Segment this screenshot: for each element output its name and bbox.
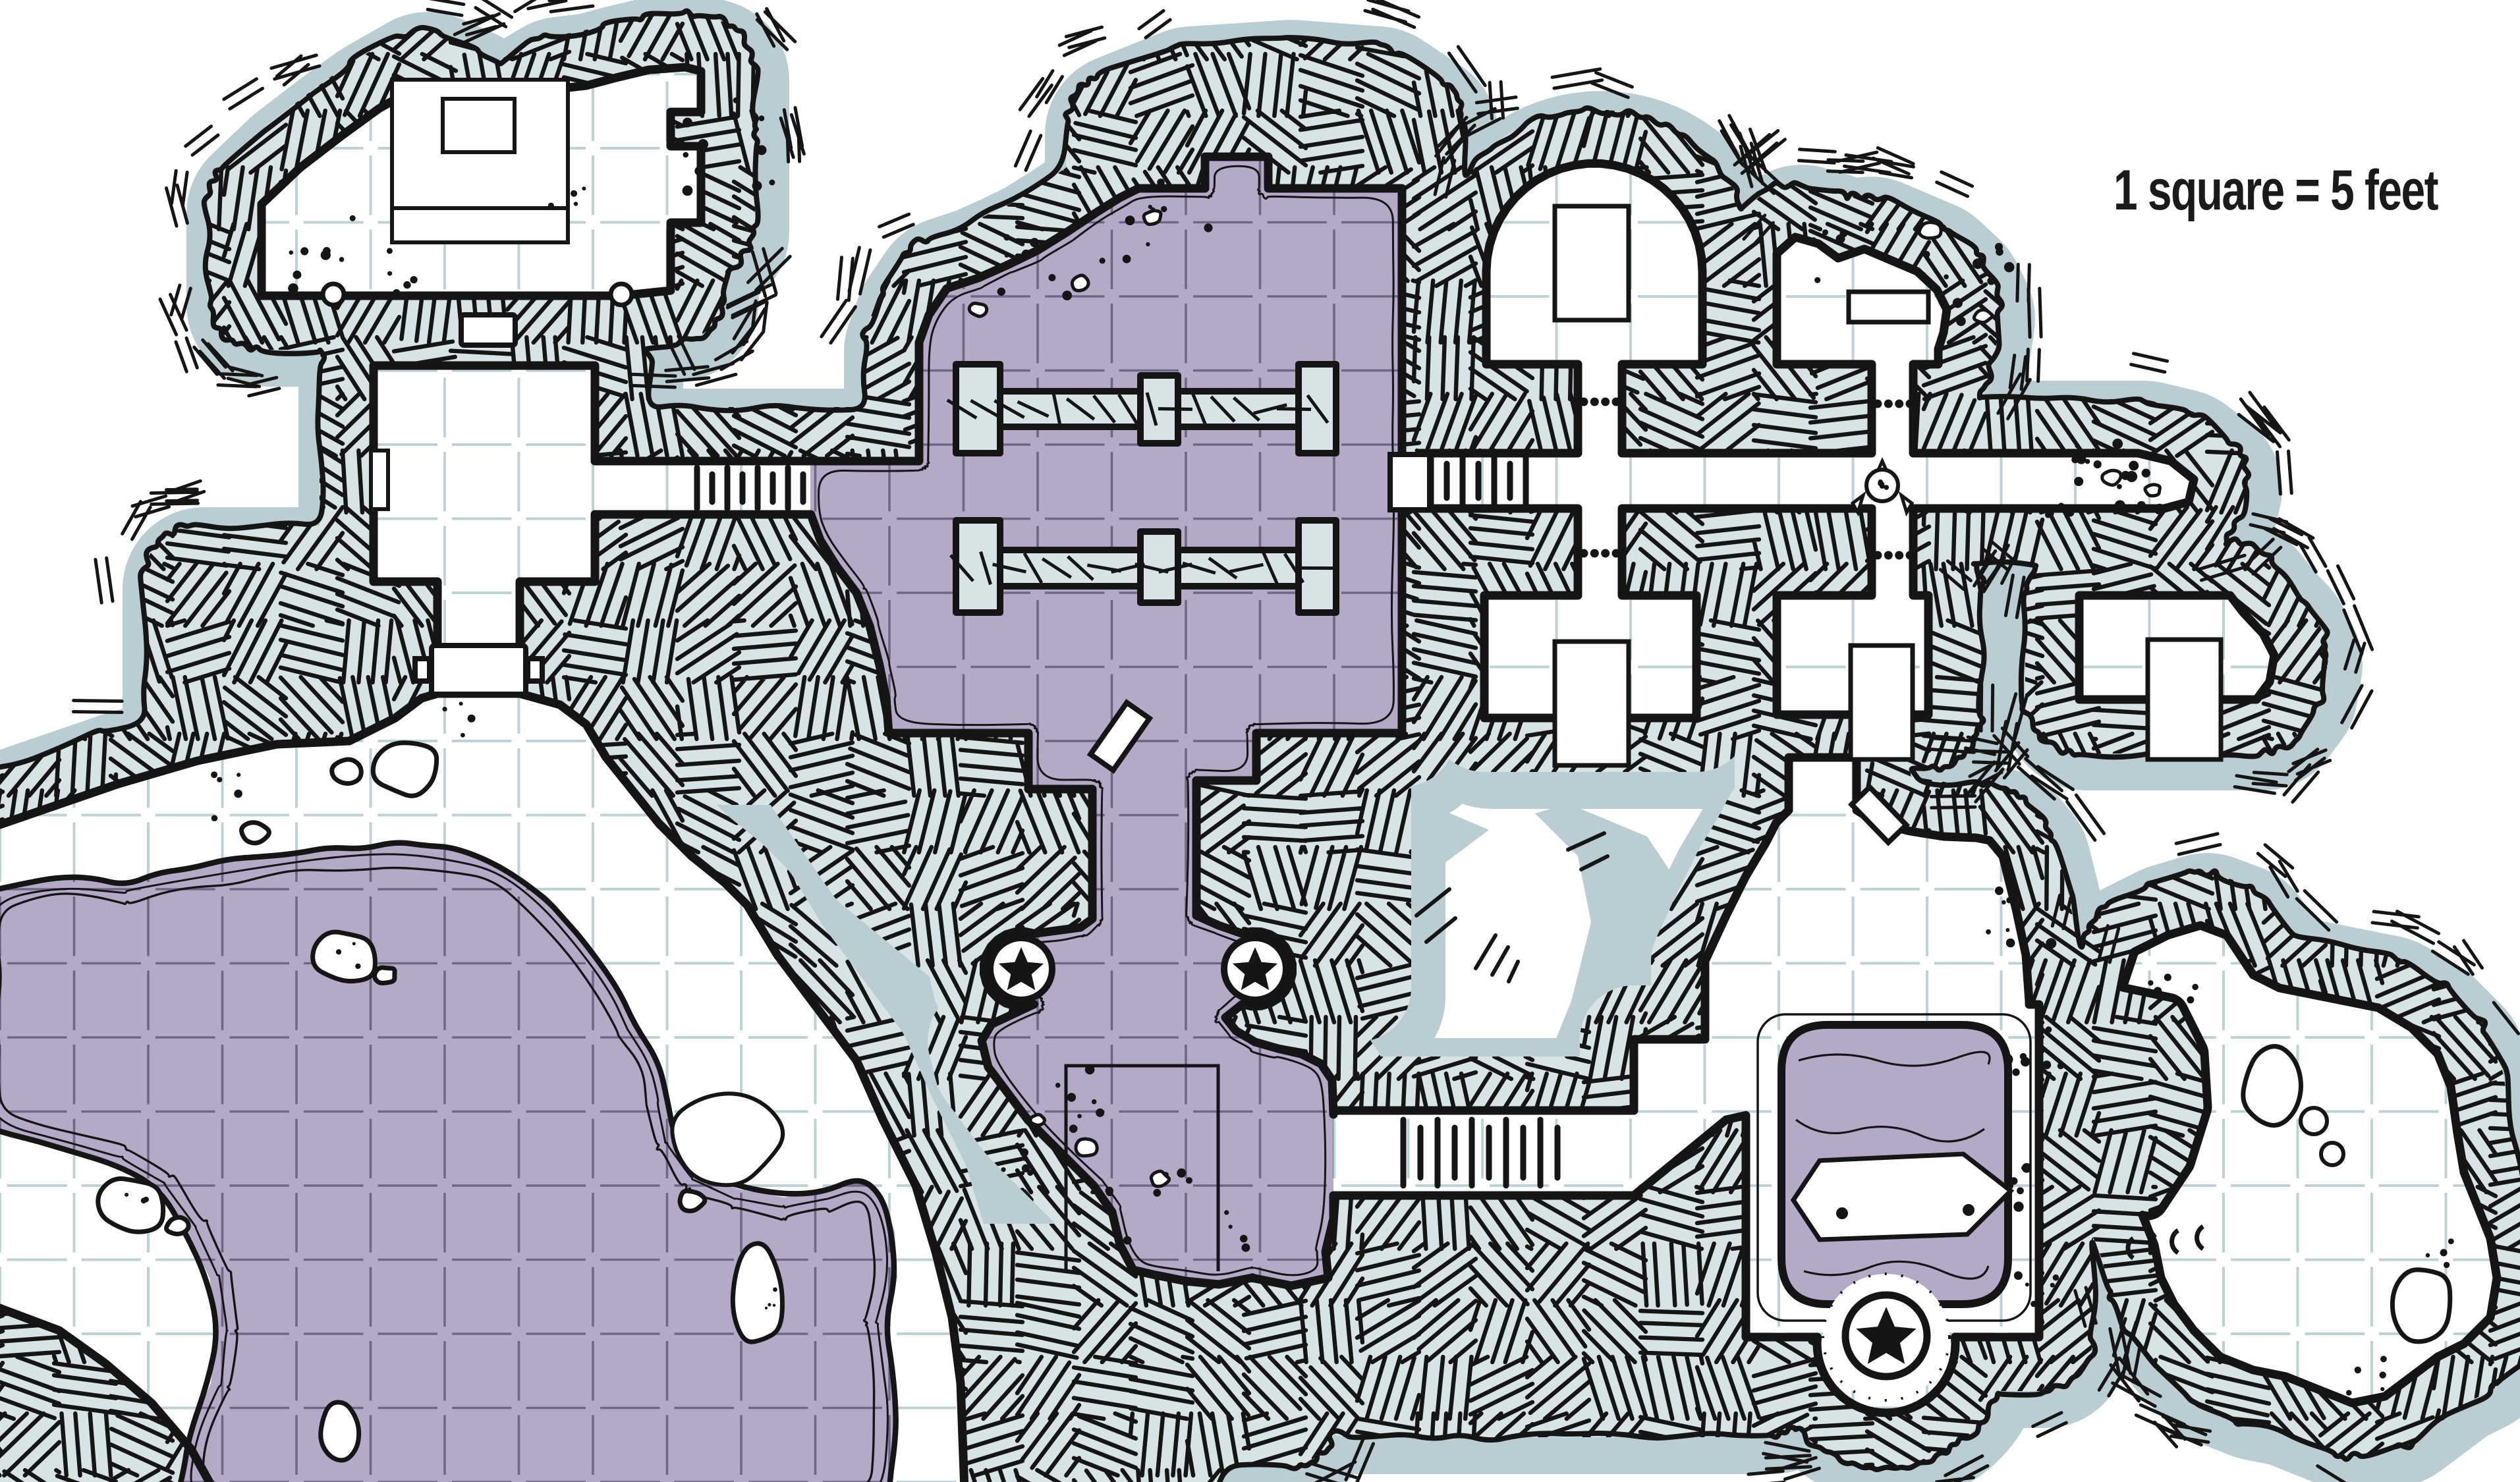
- svg-text:1 square = 5 feet: 1 square = 5 feet: [2114, 159, 2438, 222]
